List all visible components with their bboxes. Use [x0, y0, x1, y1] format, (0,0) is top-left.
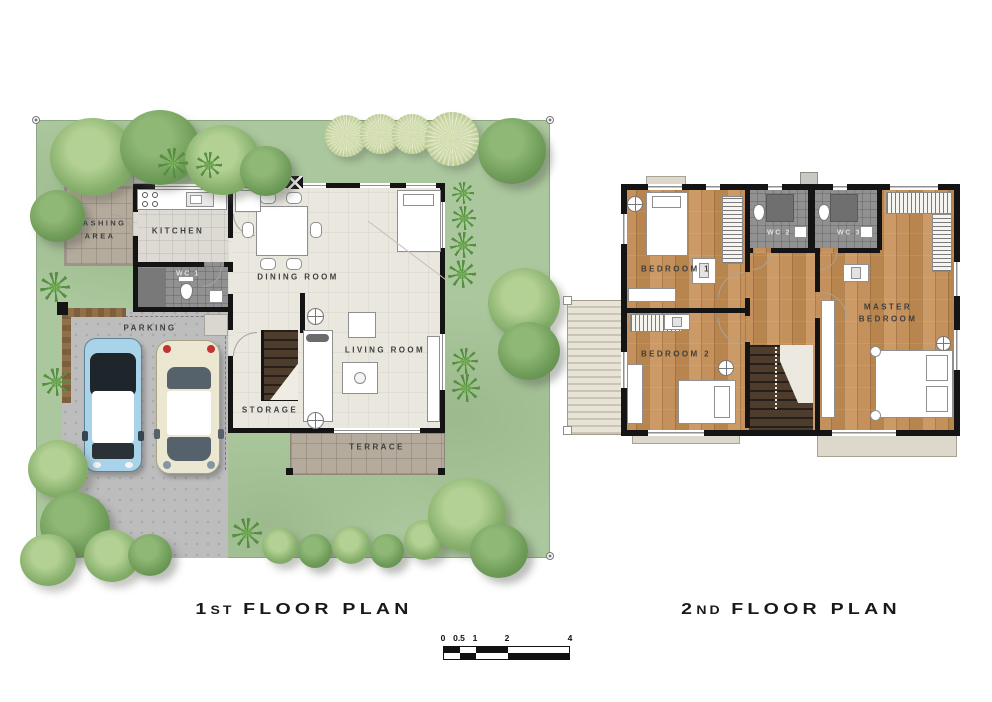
sofa-pillow	[306, 334, 329, 342]
car-taillight	[207, 345, 215, 353]
dining-chair	[260, 258, 276, 270]
wc-sink	[860, 226, 873, 238]
car-mirror	[154, 429, 160, 439]
dining-chair	[242, 222, 254, 238]
bed-pillow	[926, 355, 948, 381]
armchair	[348, 312, 376, 338]
wall	[815, 250, 820, 430]
label-master2: BEDROOM	[859, 315, 918, 324]
label-storage: STORAGE	[242, 406, 298, 415]
wardrobe	[722, 196, 743, 264]
stove-burner	[142, 192, 148, 198]
label-wc1: WC 1	[176, 271, 200, 278]
label-parking: PARKING	[123, 324, 176, 333]
car-taillight	[163, 345, 171, 353]
label-wc3: WC 3	[837, 230, 861, 237]
car-roof	[92, 391, 134, 443]
kitchen-sink-basin	[190, 195, 202, 204]
wc-sink	[794, 226, 807, 238]
stove-burner	[142, 201, 148, 207]
wc3-shower	[830, 194, 858, 222]
tv-cabinet	[427, 336, 440, 422]
window	[440, 334, 445, 390]
title-ordinal: ND	[696, 605, 722, 617]
label-master1: MASTER	[864, 303, 912, 312]
car-blue	[84, 338, 142, 472]
car-headlight	[163, 461, 171, 469]
coffee-table-plate	[354, 372, 366, 384]
window	[768, 184, 782, 190]
dining-chair	[286, 192, 302, 204]
scale-segment	[444, 647, 460, 653]
stove-burner	[152, 201, 158, 207]
desk	[628, 288, 676, 302]
plant-pot-icon	[307, 412, 324, 429]
roof-corner-mark	[563, 296, 572, 305]
survey-marker	[546, 552, 554, 560]
desk	[627, 364, 643, 424]
bed-post	[870, 346, 881, 357]
car-roof	[167, 391, 211, 435]
scale-tick-05: 0.5	[453, 633, 465, 643]
phone	[672, 317, 682, 327]
scale-bar-graphic	[443, 646, 570, 660]
scale-tick-1: 1	[473, 633, 478, 643]
planter-strip	[62, 308, 126, 317]
survey-marker	[32, 116, 40, 124]
dining-chair	[310, 222, 322, 238]
car-windshield	[92, 443, 134, 459]
entry-step	[204, 314, 228, 336]
wall-column	[57, 302, 68, 315]
palm-icon	[450, 232, 476, 258]
car-cream	[156, 340, 220, 474]
floor-plan-sheet: WASHING AREA KITCHEN WC 1 PARKING DINING…	[0, 0, 992, 702]
bed-pillow	[403, 194, 434, 206]
wc2-shower	[766, 194, 794, 222]
door-gap	[815, 292, 820, 318]
window	[406, 183, 436, 188]
door-gap	[228, 238, 233, 262]
terrace-post	[438, 468, 445, 475]
tree-icon	[370, 534, 404, 568]
scale-tick-4: 4	[568, 633, 573, 643]
wc-sink	[209, 290, 223, 303]
label-wc2: WC 2	[767, 230, 791, 237]
palm-icon	[232, 518, 262, 548]
tree-icon	[298, 534, 332, 568]
title-number: 2	[681, 601, 696, 618]
fan-icon	[627, 196, 643, 212]
window	[621, 214, 627, 244]
car-headlight	[207, 461, 215, 469]
tree-icon	[332, 526, 370, 564]
stairs-landing	[780, 345, 813, 403]
wall	[954, 184, 960, 436]
label-kitchen: KITCHEN	[152, 227, 204, 236]
label-washing-area2: AREA	[85, 232, 116, 241]
window	[954, 262, 960, 296]
window	[360, 183, 390, 188]
title-text: FLOOR PLAN	[731, 601, 901, 618]
label-living-room: LIVING ROOM	[345, 346, 425, 355]
scale-bar: 0 0.5 1 2 4	[443, 633, 573, 661]
door-gap	[745, 316, 750, 342]
phone	[851, 267, 861, 279]
tree-icon	[262, 528, 298, 564]
label-terrace: TERRACE	[349, 443, 404, 452]
first-floor-title: 1STFLOOR PLAN	[195, 601, 412, 619]
scale-segment	[508, 653, 569, 659]
bed-pillow	[714, 386, 730, 418]
tree-icon	[128, 534, 172, 576]
stairs-second-floor	[749, 345, 813, 430]
wardrobe	[886, 192, 952, 214]
door-gap	[745, 272, 750, 298]
stairs-first-floor	[264, 330, 298, 400]
wall	[808, 188, 815, 250]
bed-pillow	[926, 386, 948, 412]
label-bedroom1: BEDROOM 1	[641, 265, 711, 274]
parking-line	[225, 316, 226, 470]
terrace-floor	[290, 433, 445, 475]
survey-marker	[546, 116, 554, 124]
title-ordinal: ST	[210, 605, 234, 617]
roof-corner-mark	[563, 426, 572, 435]
fan-icon	[718, 360, 734, 376]
scale-segment	[476, 647, 508, 653]
wc1-shower	[137, 268, 165, 308]
palm-icon	[158, 148, 188, 178]
bedroom2-ledge	[632, 435, 740, 444]
tree-icon	[470, 524, 528, 578]
sofa	[303, 330, 333, 422]
car-windshield	[167, 437, 211, 461]
scale-segment	[460, 653, 476, 659]
palm-icon	[452, 348, 478, 374]
palm-icon	[40, 272, 70, 302]
window	[890, 184, 938, 190]
tree-icon	[30, 190, 85, 242]
second-floor-title: 2NDFLOOR PLAN	[681, 601, 901, 619]
tree-icon	[425, 112, 479, 166]
car-headlight	[125, 462, 133, 468]
stairs-cut	[264, 330, 298, 400]
window	[954, 330, 960, 370]
wall	[877, 188, 882, 250]
door-gap	[228, 272, 233, 294]
scale-tick-2: 2	[505, 633, 510, 643]
desk	[821, 300, 835, 418]
tree-icon	[498, 322, 560, 380]
plant-pot-icon	[307, 308, 324, 325]
car-mirror	[218, 429, 224, 439]
window	[833, 184, 847, 190]
title-text: FLOOR PLAN	[243, 601, 413, 618]
car-mirror	[82, 431, 88, 441]
palm-icon	[452, 206, 476, 230]
wall	[133, 307, 230, 312]
bed-pillow	[652, 196, 681, 208]
label-bedroom2: BEDROOM 2	[641, 350, 711, 359]
scale-tick-0: 0	[441, 633, 446, 643]
window	[302, 183, 326, 188]
car-mirror	[138, 431, 144, 441]
terrace-door	[334, 428, 420, 433]
window	[648, 184, 682, 190]
tree-icon	[20, 534, 76, 586]
bed-post	[870, 410, 881, 421]
balcony-door	[832, 430, 896, 436]
title-number: 1	[195, 601, 210, 618]
tree-icon	[28, 440, 88, 498]
wall-stub	[300, 293, 305, 333]
palm-icon	[448, 260, 476, 288]
wall	[623, 308, 747, 313]
roof-below	[567, 300, 623, 435]
palm-icon	[452, 182, 474, 204]
stair-railing	[775, 347, 777, 409]
label-dining-room: DINING ROOM	[257, 273, 339, 282]
stove-burner	[152, 192, 158, 198]
door-gap	[133, 212, 138, 236]
wardrobe	[932, 214, 952, 272]
palm-icon	[452, 374, 480, 402]
tree-icon	[240, 146, 292, 196]
palm-icon	[42, 368, 70, 396]
terrace-post	[286, 468, 293, 475]
car-headlight	[93, 462, 101, 468]
dining-chair	[286, 258, 302, 270]
palm-icon	[196, 152, 222, 178]
dining-table	[256, 206, 308, 256]
window	[706, 184, 720, 190]
tree-icon	[478, 118, 546, 184]
window	[648, 430, 704, 436]
fan-icon	[936, 336, 951, 351]
car-rear-window	[167, 367, 211, 389]
